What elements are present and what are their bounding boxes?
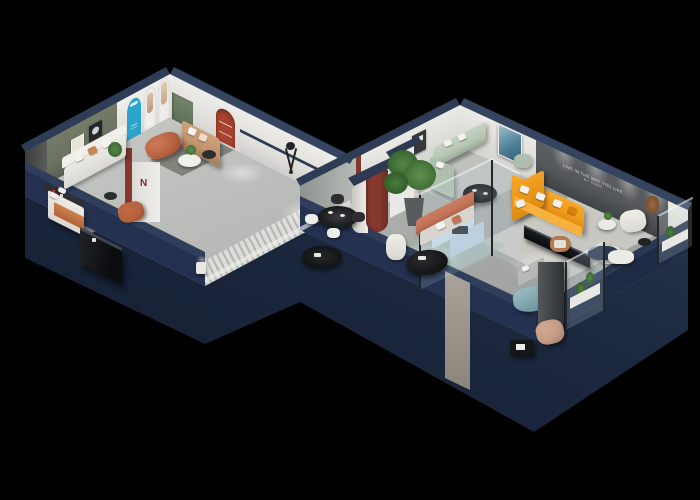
glass-frame-post — [603, 242, 605, 310]
table-setting — [328, 211, 333, 214]
chair-cushion — [554, 240, 566, 248]
table-setting — [340, 214, 345, 217]
niche-shelf — [219, 121, 232, 129]
desk-chair — [104, 192, 117, 200]
white-ottoman — [608, 250, 634, 264]
white-poster-arch — [144, 83, 156, 131]
magazine — [314, 253, 321, 257]
white-armchair — [386, 234, 406, 260]
black-chair — [202, 150, 216, 159]
glass-frame-post — [491, 160, 493, 256]
dining-chair — [331, 194, 344, 204]
case-cactus — [586, 272, 594, 284]
dining-chair — [352, 212, 365, 222]
wardrobe-column — [538, 262, 564, 324]
black-side-table — [638, 238, 651, 246]
cyan-arch-panel — [127, 95, 141, 142]
glass-frame-post — [565, 262, 567, 330]
partition-logo: N — [140, 178, 147, 189]
poster-figure — [161, 81, 167, 106]
glass-frame-post — [657, 216, 659, 264]
wood-frame-chair — [550, 236, 570, 252]
table-books — [418, 256, 426, 260]
white-poster-arch — [158, 74, 170, 124]
showroom-isometric-render: LIVE IN THE WAY YOU LIKE MY HOME N — [0, 0, 700, 500]
sideboard-deco — [92, 238, 96, 242]
tree-foliage — [384, 172, 408, 194]
dining-chair — [327, 228, 340, 238]
poster-figure — [147, 91, 153, 114]
sage-armchair — [514, 154, 532, 168]
table-plant — [604, 212, 612, 220]
tree-foliage — [404, 160, 436, 190]
tripod-lamp-head — [286, 142, 295, 150]
round-side-table — [178, 154, 201, 167]
black-magazine-stand — [510, 340, 534, 356]
dining-chair — [305, 214, 318, 224]
round-side-table — [598, 219, 616, 230]
table-plant — [186, 145, 196, 155]
niche-shelf — [219, 131, 232, 139]
magazine — [516, 344, 525, 350]
teddy-bear-figure — [646, 196, 659, 213]
black-oval-table — [302, 246, 342, 268]
cut-wall-maroon-strip — [125, 148, 132, 208]
arch-logo-marks — [130, 100, 138, 107]
nightstand-lamp-glow — [194, 254, 210, 266]
potted-plant — [108, 142, 122, 157]
crescent-art-motif — [92, 125, 99, 136]
